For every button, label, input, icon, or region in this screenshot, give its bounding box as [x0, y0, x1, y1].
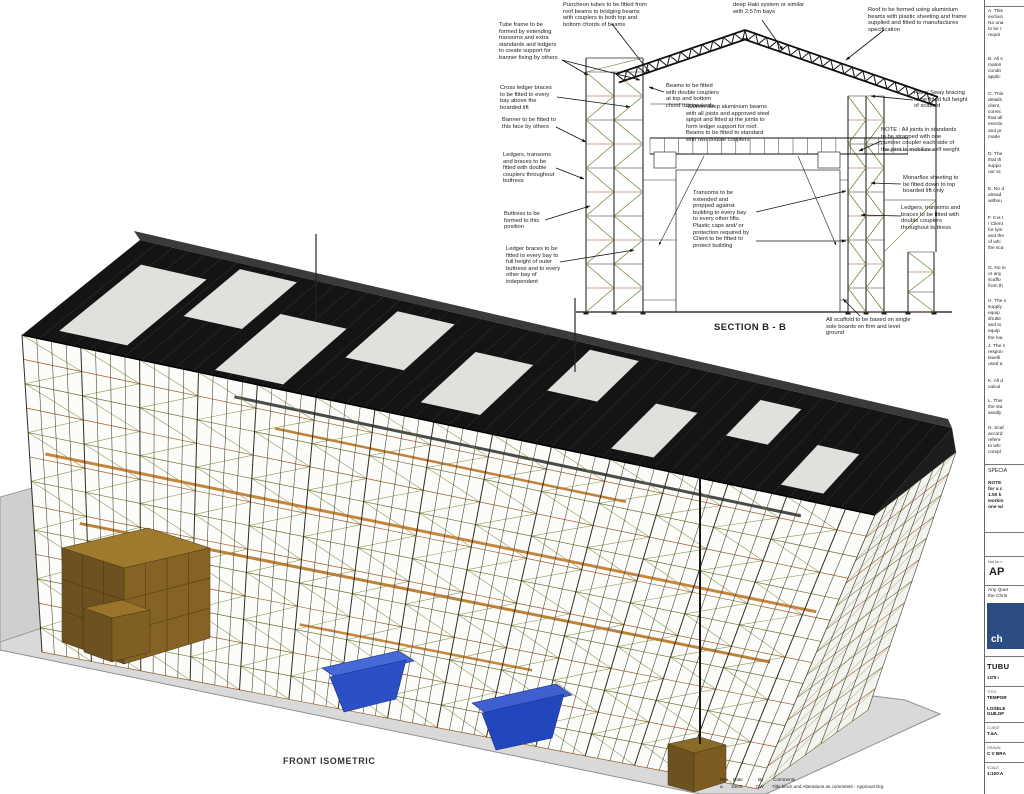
company-logo-letters: ch [991, 634, 1003, 645]
company-logo: ch [987, 603, 1024, 649]
approval-small-text: Not for c [988, 559, 1002, 565]
titleblock-site-value: LOSELE GUILDF [987, 706, 1005, 716]
annotation-buttress: Buttress to be formed to this position [504, 211, 550, 231]
note-j: J. The s respon levelli used a [988, 344, 1005, 368]
titleblock-title-value: TEMPOR [987, 695, 1007, 700]
annotation-cross-ledger: Cross ledger braces to be fitted to ever… [500, 85, 558, 111]
annotation-banner-face: Banner to be fitted to this face by othe… [502, 117, 558, 130]
queries-text: Any Quer the Chris [988, 588, 1008, 600]
annotation-haki-system: deep Haki system or similar with 2.57m b… [733, 2, 809, 15]
annotation-sole-boards: All scaffold to be based on single sole … [826, 317, 918, 337]
titleblock-title-label: TITLE [987, 690, 997, 694]
annotation-tube-frame: Tube frame to be formed by extending tra… [499, 22, 561, 62]
by-value: CW [756, 784, 764, 789]
annotation-note-joints: NOTE : All joints in standards to be str… [881, 127, 961, 153]
note-c: C. This details client, correc that all … [988, 92, 1003, 141]
annotation-face-sway: Face/ Sway bracing to be fitted full hei… [914, 90, 970, 110]
revision-table: Rev Date By Comments a 10/05 CW Title bl… [710, 777, 984, 793]
isometric-title: FRONT ISOMETRIC [283, 756, 376, 766]
divider [985, 722, 1024, 723]
note-e: E. No d alread withou [988, 187, 1004, 205]
annotation-monarflex: Monarflex sheeting to be fitted down to … [903, 175, 965, 195]
titleblock-scale-label: SCALE [987, 766, 999, 770]
drawing-sheet: Tube frame to be formed by extending tra… [0, 0, 1024, 794]
comments-value: Title block and Alterations as comments … [772, 784, 883, 789]
note-k: K. All d calcul [988, 379, 1003, 391]
rev-value: a [720, 784, 723, 789]
titleblock-client-value: T.&A. [987, 731, 998, 736]
by-header: By [758, 777, 763, 782]
divider [985, 556, 1024, 557]
section-title: SECTION B - B [714, 322, 786, 333]
section-b-b-drawing [576, 30, 952, 315]
titleblock-company: TUBU [987, 662, 1009, 671]
divider [985, 686, 1024, 687]
divider [985, 6, 1024, 7]
annotation-roof-formed: Roof to be formed using aluminium beams … [868, 7, 968, 33]
front-isometric-drawing [0, 231, 956, 794]
annotation-ledgers-left: Ledgers, transoms and braces to be fitte… [503, 152, 558, 185]
divider [985, 742, 1024, 743]
titleblock-scale-value: 1:100 A [987, 771, 1003, 776]
notes-panel: A. This exclusi No una to be r requir B.… [984, 0, 1024, 794]
divider [985, 464, 1024, 465]
note-l: L. This the sta axially [988, 399, 1002, 417]
special-note: NOTE for a c 1.50 k workin one wi [988, 481, 1003, 511]
annotation-ledgers-right: Ledgers, transoms and braces to be fitte… [901, 205, 967, 231]
note-b: B. All s materi condit applic [988, 57, 1003, 81]
divider [985, 532, 1024, 533]
comments-header: Comments [773, 777, 795, 782]
divider [985, 585, 1024, 586]
divider [985, 656, 1024, 657]
divider [985, 762, 1024, 763]
note-n: N. Scaf accord refere to whi compl [988, 426, 1004, 456]
date-value: 10/05 [731, 784, 743, 789]
titleblock-drawn-value: C V BRA [987, 751, 1006, 756]
note-f: F. It is t / Client for tyin and the of … [988, 216, 1004, 253]
titleblock-drawn-label: DRAWN [987, 746, 1000, 750]
approval-stamp: AP [989, 566, 1004, 578]
titleblock-company-sub: 1378 I [987, 675, 999, 680]
note-g: G. No lo or any scaffo from th [988, 266, 1006, 290]
annotation-alu-beams: 450mm deep aluminium beams with all jois… [686, 104, 772, 144]
annotation-ledger-braces: Ledger braces to be fitted to every bay … [506, 246, 562, 286]
rev-header: Rev [720, 777, 728, 782]
titleblock-client-label: CLIENT [987, 726, 1000, 730]
annotation-puncheon: Puncheon tubes to be fitted from roof be… [563, 2, 647, 28]
annotation-transoms: Transoms to be extended and propped agai… [693, 190, 751, 249]
note-a: A. This exclusi No una to be r requir [988, 9, 1003, 39]
date-header: Date [733, 777, 743, 782]
note-d: D. The that th suppo our sc [988, 152, 1002, 176]
note-h: H. The s supply equip shutte and to equi… [988, 299, 1006, 342]
special-header: SPECIA [988, 468, 1007, 474]
